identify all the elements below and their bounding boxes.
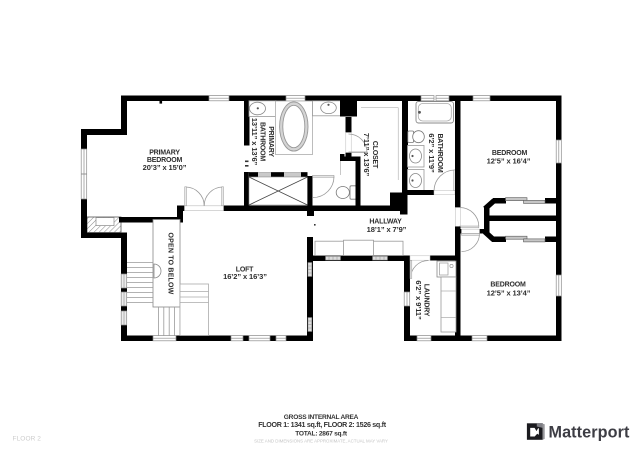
- svg-text:OPEN TO BELOW: OPEN TO BELOW: [167, 233, 174, 295]
- svg-text:6’2” x 11’9”: 6’2” x 11’9”: [427, 133, 436, 173]
- svg-text:12’5” x 16’4”: 12’5” x 16’4”: [487, 157, 531, 166]
- svg-text:16’2” x 16’3”: 16’2” x 16’3”: [223, 272, 267, 281]
- svg-text:CLOSET: CLOSET: [371, 141, 378, 169]
- svg-text:BEDROOM: BEDROOM: [490, 282, 526, 289]
- svg-text:18’1” x 7’9”: 18’1” x 7’9”: [367, 225, 407, 234]
- svg-text:TOTAL: 2867 sq.ft: TOTAL: 2867 sq.ft: [295, 431, 348, 438]
- svg-text:SIZE AND DIMENSIONS ARE APPROX: SIZE AND DIMENSIONS ARE APPROXIMATE, ACT…: [254, 438, 388, 443]
- svg-text:FLOOR 1: 1341 sq.ft, FLOOR 2:: FLOOR 1: 1341 sq.ft, FLOOR 2: 1526 sq.ft: [258, 421, 386, 429]
- svg-text:20’3” x 15’0”: 20’3” x 15’0”: [143, 163, 187, 172]
- svg-text:GROSS INTERNAL AREA: GROSS INTERNAL AREA: [284, 414, 359, 421]
- svg-text:BATHROOM: BATHROOM: [436, 133, 443, 172]
- svg-text:Matterport: Matterport: [549, 423, 631, 441]
- svg-text:FLOOR 2: FLOOR 2: [13, 436, 42, 443]
- svg-text:13’11” x 13’6”: 13’11” x 13’6”: [250, 118, 259, 166]
- svg-text:6’2” x 9’11”: 6’2” x 9’11”: [414, 280, 423, 320]
- svg-text:PRIMARY: PRIMARY: [267, 126, 274, 157]
- svg-text:7’11” x 13’6”: 7’11” x 13’6”: [362, 133, 371, 177]
- svg-text:12’5” x 13’4”: 12’5” x 13’4”: [487, 289, 531, 298]
- svg-text:PRIMARY: PRIMARY: [149, 150, 180, 157]
